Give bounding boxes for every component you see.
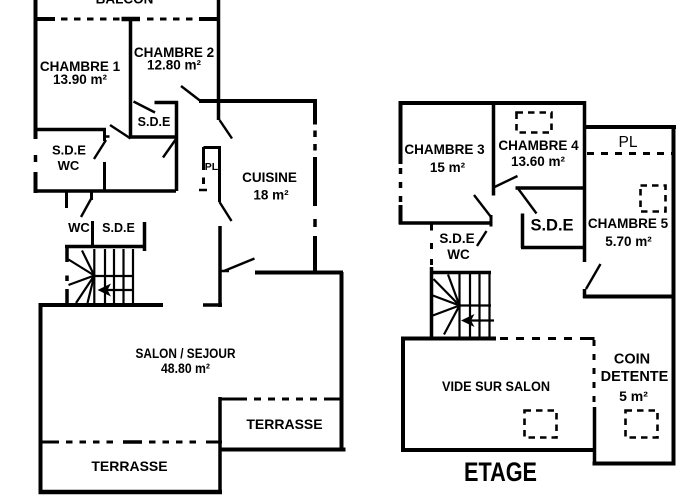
svg-text:S.D.E: S.D.E [102,221,135,235]
svg-text:TERRASSE: TERRASSE [246,416,322,432]
svg-text:18 m²: 18 m² [253,188,289,203]
svg-text:COIN: COIN [614,352,650,368]
svg-text:VIDE SUR SALON: VIDE SUR SALON [442,379,550,394]
svg-text:DETENTE: DETENTE [601,369,669,385]
svg-text:BALCON: BALCON [96,0,154,7]
svg-text:5.70 m²: 5.70 m² [605,234,652,249]
svg-text:12.80 m²: 12.80 m² [147,58,202,73]
svg-text:CHAMBRE 4: CHAMBRE 4 [498,138,579,153]
svg-text:SALON / SEJOUR: SALON / SEJOUR [136,346,236,361]
svg-text:15 m²: 15 m² [430,160,466,175]
svg-text:CHAMBRE 3: CHAMBRE 3 [404,142,485,157]
svg-text:13.60 m²: 13.60 m² [511,154,566,169]
svg-text:ETAGE: ETAGE [464,457,537,487]
svg-text:WC: WC [447,247,470,262]
svg-text:WC: WC [58,158,80,173]
svg-text:5 m²: 5 m² [619,388,648,404]
svg-text:48.80 m²: 48.80 m² [161,361,210,376]
svg-text:WC: WC [68,220,90,235]
svg-text:S.D.E: S.D.E [138,115,171,129]
svg-text:S.D.E: S.D.E [530,217,573,235]
svg-text:CHAMBRE 5: CHAMBRE 5 [588,216,669,231]
svg-text:PL: PL [619,134,638,151]
svg-text:PL: PL [205,161,219,173]
svg-text:S.D.E: S.D.E [52,143,86,158]
svg-text:TERRASSE: TERRASSE [91,458,167,474]
svg-text:CUISINE: CUISINE [242,170,297,185]
svg-text:S.D.E: S.D.E [439,231,474,246]
svg-text:13.90 m²: 13.90 m² [53,72,108,87]
